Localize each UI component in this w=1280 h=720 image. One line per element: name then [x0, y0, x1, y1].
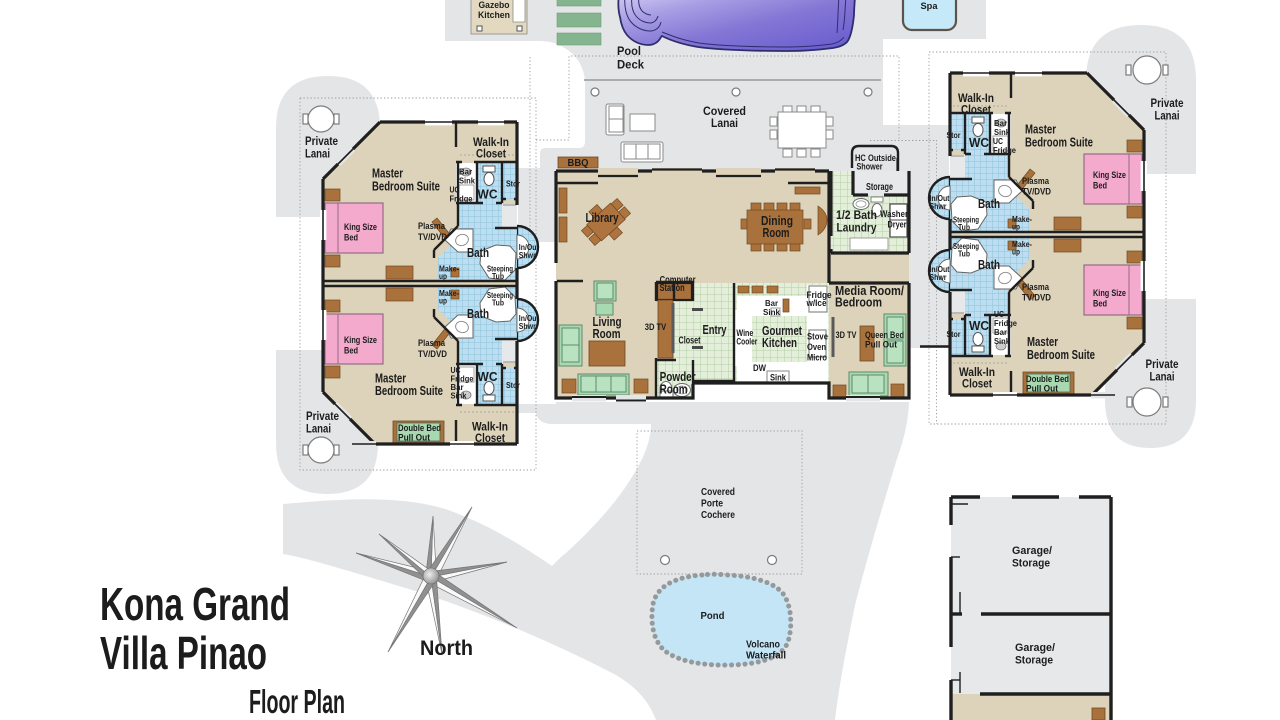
svg-text:TV/DVD: TV/DVD	[1022, 293, 1051, 304]
svg-text:Closet: Closet	[475, 431, 505, 445]
svg-text:Shwr: Shwr	[519, 321, 537, 331]
svg-text:Lanai: Lanai	[711, 116, 738, 130]
svg-text:Storage: Storage	[1012, 558, 1050, 570]
svg-text:Tub: Tub	[492, 272, 504, 281]
svg-text:Kitchen: Kitchen	[762, 335, 797, 350]
svg-text:Spa: Spa	[921, 1, 939, 11]
svg-text:Bed: Bed	[1093, 299, 1107, 310]
svg-text:Cooler: Cooler	[736, 337, 757, 347]
svg-text:up: up	[439, 296, 447, 306]
svg-text:Kitchen: Kitchen	[478, 10, 510, 20]
svg-text:Closet: Closet	[962, 377, 992, 391]
svg-text:Fridge: Fridge	[993, 145, 1016, 155]
svg-text:King Size: King Size	[344, 335, 377, 346]
svg-text:Sink: Sink	[763, 307, 780, 317]
svg-text:Oven: Oven	[807, 342, 826, 352]
svg-text:Station: Station	[660, 283, 685, 294]
svg-text:Closet: Closet	[961, 103, 991, 117]
svg-text:Pull Out: Pull Out	[398, 433, 430, 443]
svg-text:3D TV: 3D TV	[836, 330, 858, 341]
svg-text:WC: WC	[969, 135, 990, 150]
svg-text:Double Bed: Double Bed	[398, 423, 441, 433]
svg-text:Fridge: Fridge	[450, 194, 473, 204]
svg-text:Lanai: Lanai	[1150, 370, 1175, 384]
svg-text:Storage: Storage	[1015, 655, 1053, 667]
svg-text:up: up	[1012, 222, 1020, 232]
svg-text:Micro: Micro	[807, 353, 827, 363]
svg-text:Cochere: Cochere	[701, 509, 735, 521]
svg-text:Waterfall: Waterfall	[746, 651, 786, 662]
svg-text:Deck: Deck	[617, 58, 644, 72]
svg-text:up: up	[439, 271, 447, 281]
svg-text:Bath: Bath	[467, 245, 489, 260]
svg-text:Stor: Stor	[506, 179, 521, 189]
svg-text:Lanai: Lanai	[1155, 109, 1180, 123]
svg-text:TV/DVD: TV/DVD	[418, 349, 447, 360]
svg-text:Closet: Closet	[679, 336, 701, 347]
svg-text:Covered: Covered	[701, 486, 735, 498]
svg-text:TV/DVD: TV/DVD	[418, 232, 447, 243]
svg-text:Bedroom Suite: Bedroom Suite	[372, 180, 440, 194]
svg-text:Bedroom Suite: Bedroom Suite	[375, 384, 443, 398]
svg-text:Bed: Bed	[1093, 181, 1107, 192]
svg-text:Stove: Stove	[807, 332, 828, 342]
svg-text:WC: WC	[969, 318, 990, 333]
svg-text:Pond: Pond	[701, 610, 725, 622]
svg-text:WC: WC	[478, 187, 499, 202]
svg-text:Tub: Tub	[958, 223, 970, 232]
svg-text:Room: Room	[763, 226, 790, 240]
svg-text:Garage/: Garage/	[1015, 642, 1055, 654]
svg-text:Master: Master	[372, 167, 403, 181]
svg-text:Plasma: Plasma	[418, 221, 446, 232]
svg-text:Porte: Porte	[701, 498, 723, 510]
svg-text:Lanai: Lanai	[306, 422, 331, 436]
svg-text:w/Ice: w/Ice	[806, 298, 827, 308]
svg-text:Pull Out: Pull Out	[1026, 384, 1058, 394]
svg-text:Gazebo: Gazebo	[479, 0, 510, 10]
svg-text:Bed: Bed	[344, 233, 358, 244]
svg-text:Stor: Stor	[947, 130, 962, 140]
svg-text:Bedroom: Bedroom	[835, 295, 882, 310]
svg-text:Tub: Tub	[492, 299, 504, 308]
svg-text:DW: DW	[753, 363, 766, 373]
svg-text:Shwr: Shwr	[930, 272, 948, 282]
svg-text:North: North	[420, 637, 473, 660]
svg-text:Stor: Stor	[947, 329, 962, 339]
svg-text:Stor: Stor	[506, 380, 521, 390]
svg-text:Pool: Pool	[617, 44, 641, 58]
svg-text:Bedroom Suite: Bedroom Suite	[1027, 348, 1095, 362]
svg-text:Laundry: Laundry	[837, 221, 877, 235]
svg-text:Closet: Closet	[476, 147, 506, 161]
svg-text:Floor Plan: Floor Plan	[249, 683, 345, 720]
svg-text:Volcano: Volcano	[746, 640, 780, 651]
svg-text:Sink: Sink	[770, 373, 787, 383]
svg-text:Master: Master	[1027, 335, 1058, 349]
svg-text:BBQ: BBQ	[568, 157, 589, 169]
svg-text:Bedroom Suite: Bedroom Suite	[1025, 136, 1093, 150]
svg-text:Bath: Bath	[467, 306, 489, 321]
svg-text:Storage: Storage	[866, 182, 893, 193]
svg-text:Villa Pinao: Villa Pinao	[100, 627, 267, 679]
svg-text:Garage/: Garage/	[1012, 545, 1052, 557]
svg-text:Master: Master	[1025, 123, 1056, 137]
svg-text:Shwr: Shwr	[519, 250, 537, 260]
svg-text:Shwr: Shwr	[930, 201, 948, 211]
svg-text:Bed: Bed	[344, 346, 358, 357]
svg-text:Library: Library	[586, 211, 619, 225]
svg-text:3D TV: 3D TV	[645, 322, 667, 333]
svg-text:Washer: Washer	[880, 209, 908, 219]
svg-text:Room: Room	[593, 326, 621, 341]
svg-text:WC: WC	[478, 369, 499, 384]
svg-text:Plasma: Plasma	[1022, 282, 1050, 293]
svg-text:Bath: Bath	[978, 257, 1000, 272]
svg-text:Plasma: Plasma	[1022, 176, 1050, 187]
svg-text:Sink: Sink	[451, 391, 467, 401]
svg-text:Plasma: Plasma	[418, 338, 446, 349]
svg-text:Shower: Shower	[857, 162, 883, 172]
svg-text:up: up	[1012, 247, 1020, 257]
svg-text:Entry: Entry	[703, 322, 728, 337]
svg-text:Lanai: Lanai	[305, 147, 330, 161]
svg-text:King Size: King Size	[344, 222, 377, 233]
svg-text:Tub: Tub	[958, 250, 970, 259]
svg-text:King Size: King Size	[1093, 170, 1126, 181]
svg-text:King Size: King Size	[1093, 288, 1126, 299]
svg-text:TV/DVD: TV/DVD	[1022, 187, 1051, 198]
svg-text:Sink: Sink	[459, 176, 475, 186]
svg-text:Sink: Sink	[994, 336, 1010, 346]
svg-text:Room: Room	[660, 383, 688, 397]
svg-text:Double Bed: Double Bed	[1026, 374, 1069, 384]
svg-text:Dryer: Dryer	[888, 220, 907, 230]
svg-text:Kona Grand: Kona Grand	[100, 578, 290, 630]
svg-text:Bath: Bath	[978, 196, 1000, 211]
svg-text:Pull Out: Pull Out	[865, 340, 898, 351]
